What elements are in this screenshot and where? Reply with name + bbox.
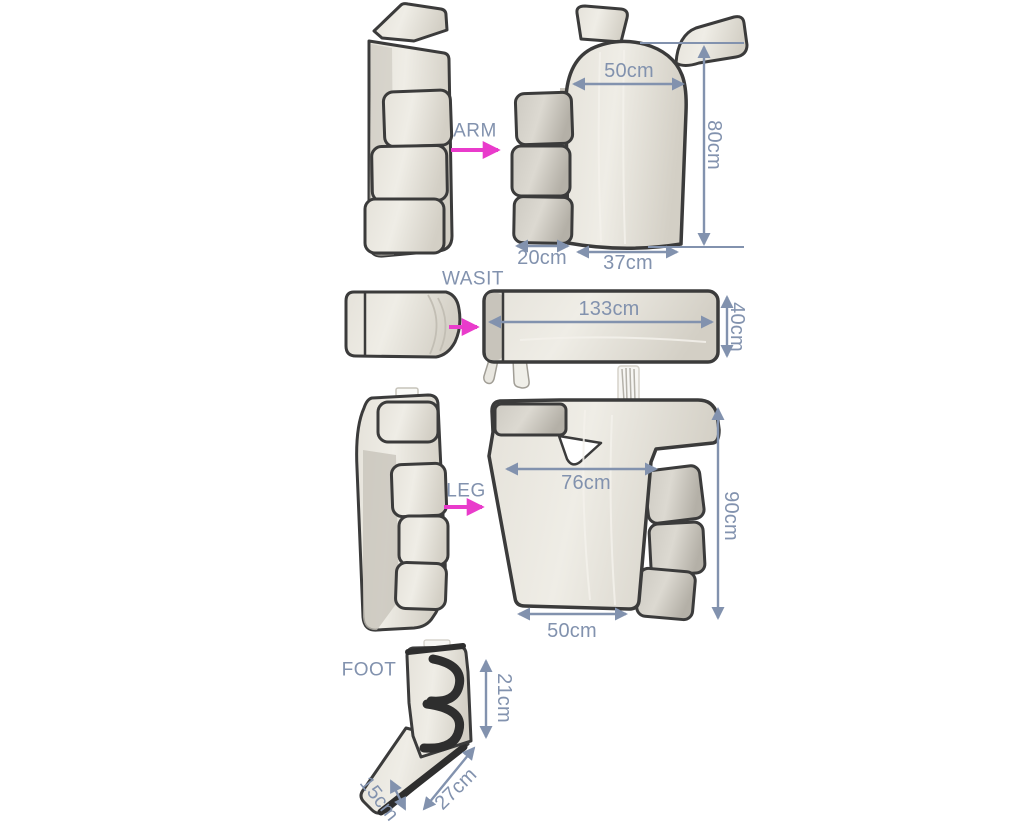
arm-flap-width-dimension: 20cm bbox=[517, 248, 567, 268]
leg-section-label: LEG bbox=[446, 482, 486, 501]
product-dimension-diagram: ARM 50cm 80cm 20cm 37cm WASIT 133cm 40cm… bbox=[0, 0, 1024, 828]
waist-folded-garment bbox=[346, 292, 460, 357]
arm-top-width-dimension: 50cm bbox=[604, 61, 654, 81]
waist-height-dimension: 40cm bbox=[727, 302, 747, 352]
arm-section-label: ARM bbox=[453, 122, 497, 141]
arm-height-dimension: 80cm bbox=[704, 120, 724, 170]
waist-length-dimension: 133cm bbox=[578, 299, 639, 319]
leg-bottom-width-dimension: 50cm bbox=[547, 621, 597, 641]
leg-folded-garment bbox=[357, 388, 448, 630]
waist-section-label: WASIT bbox=[442, 270, 504, 289]
foot-height-dimension: 21cm bbox=[494, 673, 514, 723]
arm-bottom-width-dimension: 37cm bbox=[603, 253, 653, 273]
arm-folded-garment bbox=[365, 4, 452, 256]
leg-height-dimension: 90cm bbox=[721, 491, 741, 541]
foot-section-label: FOOT bbox=[342, 661, 397, 680]
leg-top-width-dimension: 76cm bbox=[561, 473, 611, 493]
